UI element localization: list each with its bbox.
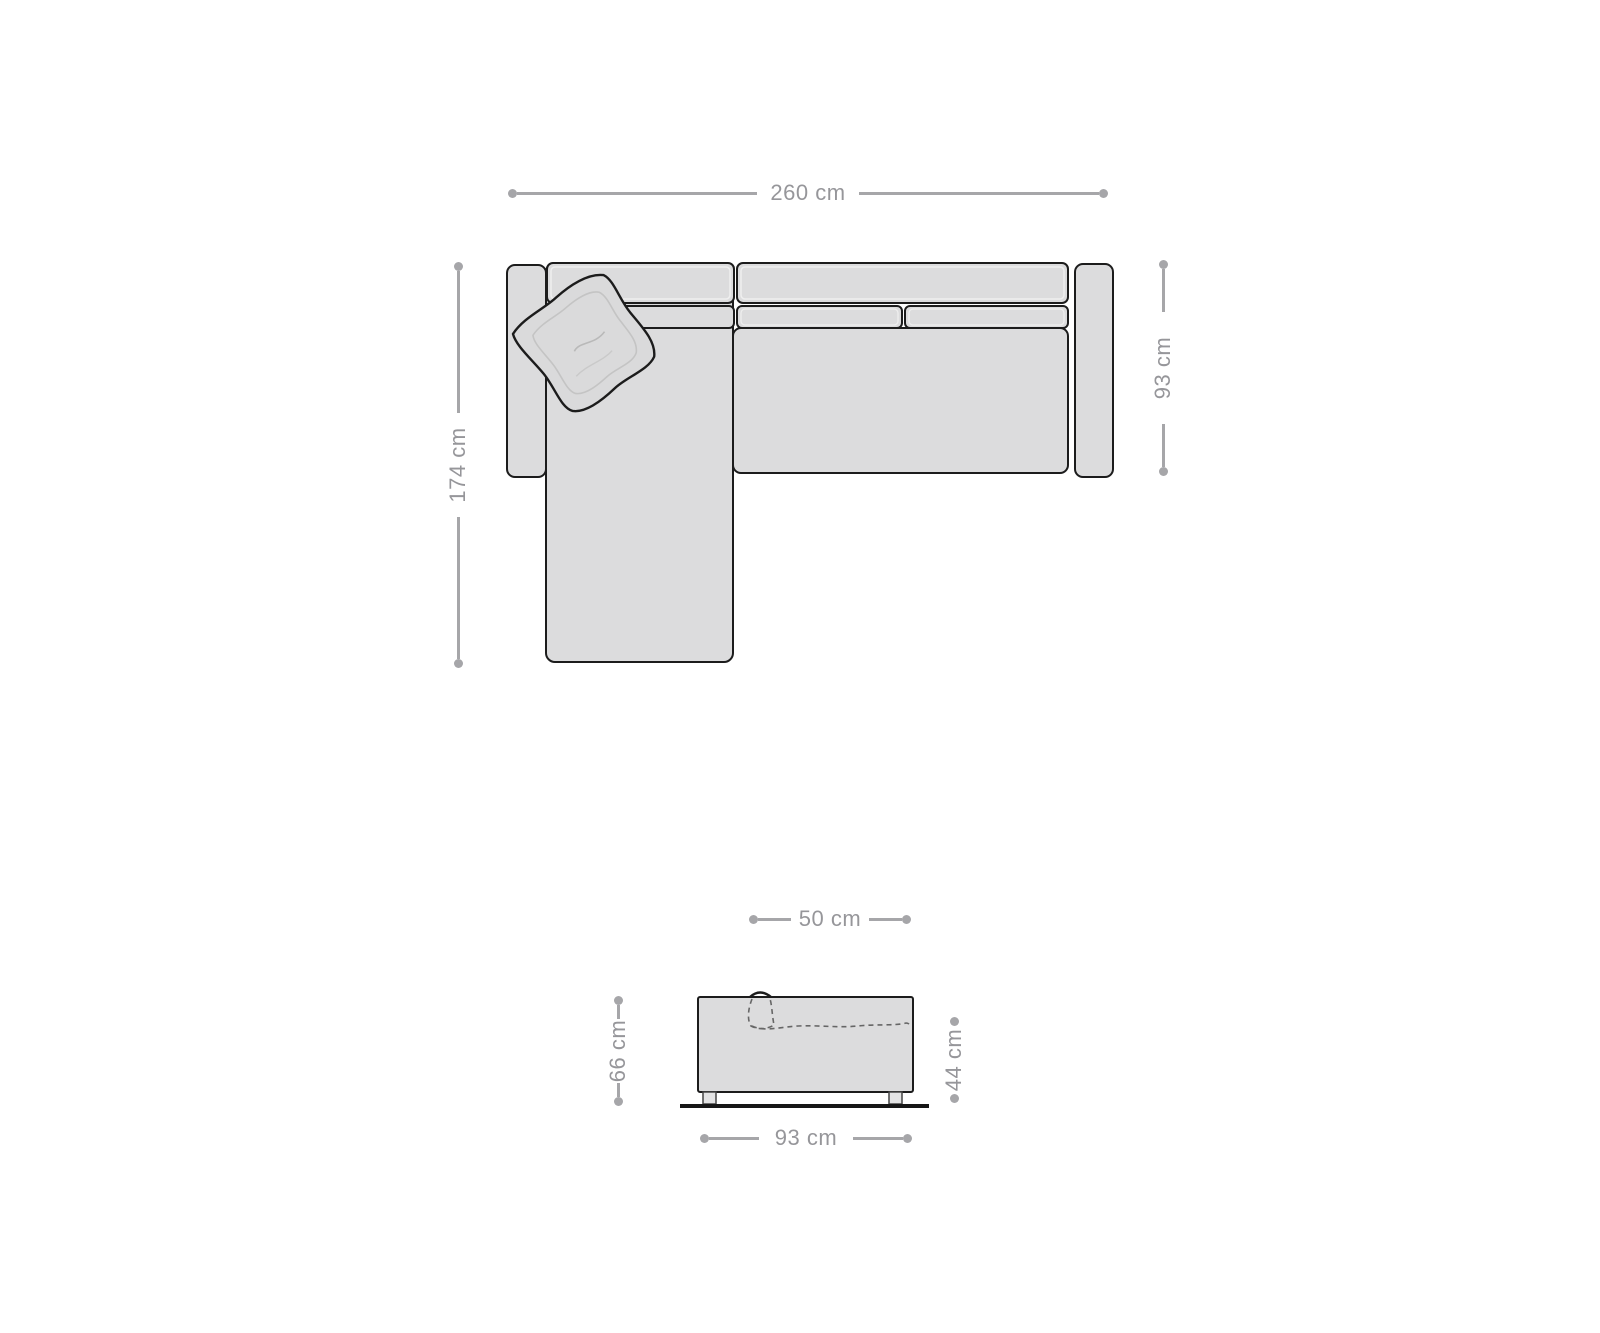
dimension-label: 93 cm [759,1127,853,1149]
dimension-total-width: 260 cm [508,184,1108,202]
dimension-label-wrap: 174 cm [450,413,466,517]
dimension-label: 174 cm [447,427,469,502]
dimension-line [869,918,902,921]
dimension-label: 66 cm [607,1020,629,1082]
dimension-line [853,1137,903,1140]
dimension-total-depth: 93 cm [700,1129,912,1147]
dimension-line [1162,269,1165,312]
dimension-endpoint-dot [454,659,463,668]
dimension-total-height: 66 cm [610,996,626,1106]
back-cushion-main [737,263,1068,303]
dimension-label-wrap: 93 cm [1155,312,1171,424]
dimension-endpoint-dot [903,1134,912,1143]
dimension-endpoint-dot [614,1097,623,1106]
sofa-side-view-drawing [660,975,960,1120]
side-leg-right [889,1092,902,1104]
dimension-endpoint-dot [1159,467,1168,476]
dimension-endpoint-dot [1159,260,1168,269]
dimension-label: 50 cm [791,908,869,930]
dimension-line [1162,424,1165,467]
dimension-label: 93 cm [1152,337,1174,399]
dimension-line [617,1083,620,1097]
side-body [698,997,913,1092]
dimension-line [758,918,791,921]
side-leg-left [703,1092,716,1104]
sofa-top-view-drawing [490,248,1130,678]
dimension-line [709,1137,759,1140]
dimension-chaise-depth: 174 cm [450,262,466,668]
dimension-endpoint-dot [700,1134,709,1143]
dimension-line [457,517,460,659]
dimension-line [517,192,757,195]
dimension-seat-depth: 50 cm [749,910,911,928]
main-seat [733,328,1068,473]
dimension-endpoint-dot [454,262,463,271]
dimension-seat-height: 44 cm [946,1017,962,1103]
dimension-body-depth: 93 cm [1155,260,1171,476]
dimension-label-wrap: 66 cm [610,1019,626,1083]
dimension-endpoint-dot [950,1017,959,1026]
dimension-endpoint-dot [902,915,911,924]
dimension-line [457,271,460,413]
dimension-line [617,1005,620,1019]
dimension-label-wrap: 44 cm [946,1026,962,1094]
dimension-label: 44 cm [943,1029,965,1091]
dimension-endpoint-dot [614,996,623,1005]
dimension-line [859,192,1099,195]
dimension-endpoint-dot [950,1094,959,1103]
dimension-endpoint-dot [1099,189,1108,198]
dimension-endpoint-dot [508,189,517,198]
dimension-label: 260 cm [757,182,858,204]
right-armrest [1075,264,1113,477]
dimension-endpoint-dot [749,915,758,924]
sofa-dimension-diagram: 260 cm 174 cm 93 cm 50 cm 66 cm 44 cm [0,0,1600,1333]
